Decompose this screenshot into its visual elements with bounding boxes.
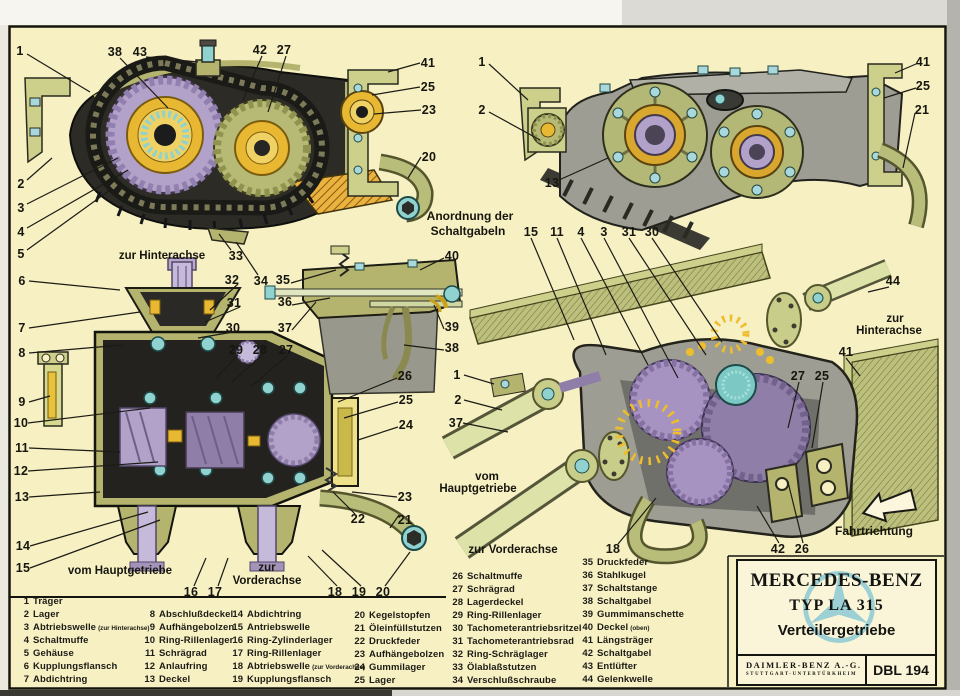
callout-number: 1	[453, 368, 460, 382]
diagram-text-label: Hinterachse	[856, 325, 922, 337]
callout-number: 25	[815, 369, 830, 383]
subtitle: Verteilergetriebe	[738, 622, 935, 639]
callout-number: 42	[253, 43, 268, 57]
callout-number: 23	[422, 103, 437, 117]
callout-number: 31	[622, 225, 637, 239]
callout-number: 1	[16, 44, 23, 58]
manufacturer-cell: DAIMLER-BENZ A.-G. STUTTGART-UNTERTÜRKHE…	[738, 656, 865, 684]
callout-number: 18	[606, 542, 621, 556]
callout-number: 4	[17, 225, 24, 239]
callout-number: 23	[398, 490, 413, 504]
callout-number: 2	[454, 393, 461, 407]
diagram-text-label: Anordnung der	[427, 209, 514, 223]
callout-number: 34	[254, 274, 269, 288]
callout-number: 28	[253, 343, 268, 357]
callout-number: 22	[351, 512, 366, 526]
callout-number: 30	[226, 321, 241, 335]
callout-number: 3	[600, 225, 607, 239]
callout-number: 41	[916, 55, 931, 69]
callout-number: 44	[886, 274, 901, 288]
callout-number: 27	[277, 43, 292, 57]
callout-number: 20	[376, 585, 391, 599]
callout-number: 26	[795, 542, 810, 556]
legend-item: 17Ring-Rillenlager	[226, 647, 365, 660]
callout-number: 3	[17, 201, 24, 215]
callout-number: 38	[108, 45, 123, 59]
callout-number: 20	[422, 150, 437, 164]
legend-item: 5Gehäuse	[12, 647, 150, 660]
callout-number: 16	[184, 585, 199, 599]
legend-column-5: 26Schaltmuffe27Schrägrad28Lagerdeckel29R…	[446, 570, 582, 687]
legend-item: 14Abdichtring	[226, 608, 365, 621]
legend-item: 28Lagerdeckel	[446, 596, 582, 609]
legend-item: 33Ölablaßstutzen	[446, 661, 582, 674]
callout-number: 37	[278, 321, 293, 335]
callout-number: 7	[18, 321, 25, 335]
callout-number: 14	[16, 539, 31, 553]
callout-number: 42	[771, 542, 786, 556]
callout-number: 40	[445, 249, 460, 263]
legend-item: 19Kupplungsflansch	[226, 673, 365, 686]
legend-item: 20Kegelstopfen	[348, 609, 444, 622]
callout-number: 36	[278, 295, 293, 309]
diagram-text-label: vom Hauptgetriebe	[68, 565, 172, 577]
diagram-text-label: Fahrtrichtung	[835, 524, 913, 538]
callout-number: 30	[645, 225, 660, 239]
legend-item: 18Abtriebswelle(zur Vorderachse)	[226, 660, 365, 673]
callout-number: 26	[398, 369, 413, 383]
legend-column-3: 14Abdichtring15Antriebswelle16Ring-Zylin…	[226, 608, 365, 686]
callout-number: 10	[14, 416, 29, 430]
legend-item: 12Anlaufring	[138, 660, 234, 673]
callout-number: 21	[398, 513, 413, 527]
legend-item: 27Schrägrad	[446, 583, 582, 596]
legend-column-1: 1Träger2Lager3Abtriebswelle(zur Hinterac…	[12, 595, 150, 686]
callout-number: 5	[17, 247, 24, 261]
callout-number: 2	[478, 103, 485, 117]
brand-title: MERCEDES-BENZ	[738, 570, 935, 592]
callout-number: 1	[478, 55, 485, 69]
callout-number: 24	[399, 418, 414, 432]
legend-item: 43Entlüfter	[576, 660, 684, 673]
legend-item: 34Verschlußschraube	[446, 674, 582, 687]
callout-number: 13	[545, 176, 560, 190]
callout-number: 39	[445, 320, 460, 334]
legend-item: 4Schaltmuffe	[12, 634, 150, 647]
callout-number: 27	[791, 369, 806, 383]
callout-number: 29	[229, 343, 244, 357]
legend-column-2: 8Abschlußdeckel9Aufhängebolzen10Ring-Ril…	[138, 608, 234, 686]
manufacturer-name: DAIMLER-BENZ A.-G.	[746, 660, 865, 670]
manufacturer-city: STUTTGART-UNTERTÜRKHEIM	[746, 672, 865, 677]
legend-item: 3Abtriebswelle(zur Hinterachse)	[12, 621, 150, 634]
callout-number: 6	[18, 274, 25, 288]
legend-item: 29Ring-Rillenlager	[446, 609, 582, 622]
callout-number: 17	[208, 585, 223, 599]
legend-item: 24Gummilager	[348, 661, 444, 674]
illustration-chain-case-section	[8, 40, 425, 244]
legend-item: 35Druckfeder	[576, 556, 684, 569]
legend-item: 9Aufhängebolzen	[138, 621, 234, 634]
callout-number: 32	[225, 273, 240, 287]
callout-number: 11	[550, 225, 564, 239]
callout-number: 2	[17, 177, 24, 191]
callout-number: 43	[133, 45, 148, 59]
legend-item: 26Schaltmuffe	[446, 570, 582, 583]
legend-item: 16Ring-Zylinderlager	[226, 634, 365, 647]
callout-number: 27	[279, 343, 294, 357]
callout-number: 38	[445, 341, 460, 355]
callout-number: 11	[15, 441, 29, 455]
title-block-footer: DAIMLER-BENZ A.-G. STUTTGART-UNTERTÜRKHE…	[738, 654, 935, 684]
diagram-text-label: zur Hinterachse	[119, 250, 205, 262]
callout-number: 41	[839, 345, 854, 359]
legend-item: 22Druckfeder	[348, 635, 444, 648]
callout-number: 18	[328, 585, 343, 599]
legend-item: 36Stahlkugel	[576, 569, 684, 582]
legend-item: 42Schaltgabel	[576, 647, 684, 660]
callout-number: 21	[915, 103, 930, 117]
legend-item: 23Aufhängebolzen	[348, 648, 444, 661]
title-block: MERCEDES-BENZ TYP LA 315 Verteilergetrie…	[736, 559, 937, 686]
legend-item: 38Schaltgabel	[576, 595, 684, 608]
diagram-text-label: Hauptgetriebe	[439, 483, 516, 495]
legend-item: 30Tachometerantriebsritzel	[446, 622, 582, 635]
callout-number: 15	[16, 561, 31, 575]
legend-item: 40Deckel(oben)	[576, 621, 684, 634]
diagram-text-label: zur	[258, 562, 275, 574]
callout-number: 8	[18, 346, 25, 360]
illustration-perspective	[448, 244, 938, 556]
legend-item: 39Gummimanschette	[576, 608, 684, 621]
legend-item: 2Lager	[12, 608, 150, 621]
legend-item: 32Ring-Schräglager	[446, 648, 582, 661]
callout-number: 31	[227, 296, 242, 310]
callout-number: 33	[229, 249, 244, 263]
callout-number: 13	[15, 490, 30, 504]
model-title: TYP LA 315	[738, 597, 935, 615]
legend-item: 11Schrägrad	[138, 647, 234, 660]
legend-item: 37Schaltstange	[576, 582, 684, 595]
diagram-text-label: Vorderachse	[233, 575, 302, 587]
callout-number: 12	[14, 464, 29, 478]
legend-item: 8Abschlußdeckel	[138, 608, 234, 621]
diagram-text-label: zur Vorderachse	[468, 544, 557, 556]
callout-number: 25	[421, 80, 436, 94]
legend-item: 6Kupplungsflansch	[12, 660, 150, 673]
legend-item: 41Längsträger	[576, 634, 684, 647]
callout-number: 25	[399, 393, 414, 407]
callout-number: 37	[449, 416, 464, 430]
legend-item: 7Abdichtring	[12, 673, 150, 686]
legend-item: 31Tachometerantriebsrad	[446, 635, 582, 648]
diagram-text-label: Schaltgabeln	[431, 224, 506, 238]
callout-number: 4	[577, 225, 584, 239]
doc-number: DBL 194	[865, 656, 935, 684]
legend-item: 10Ring-Rillenlager	[138, 634, 234, 647]
legend-item: 25Lager	[348, 674, 444, 687]
legend-item: 21Öleinfüllstutzen	[348, 622, 444, 635]
legend-item: 13Deckel	[138, 673, 234, 686]
callout-number: 19	[352, 585, 367, 599]
legend-item: 15Antriebswelle	[226, 621, 365, 634]
callout-number: 25	[916, 79, 931, 93]
legend-item: 1Träger	[12, 595, 150, 608]
diagram-text-label: vom	[475, 471, 499, 483]
diagram-text-label: zur	[886, 313, 903, 325]
legend-column-6: 35Druckfeder36Stahlkugel37Schaltstange38…	[576, 556, 684, 686]
callout-number: 41	[421, 56, 436, 70]
illustration-case-exterior	[520, 64, 920, 250]
legend-column-4: 20Kegelstopfen21Öleinfüllstutzen22Druckf…	[348, 609, 444, 687]
callout-number: 35	[276, 273, 291, 287]
legend-item: 44Gelenkwelle	[576, 673, 684, 686]
callout-number: 9	[18, 395, 25, 409]
callout-number: 15	[524, 225, 539, 239]
